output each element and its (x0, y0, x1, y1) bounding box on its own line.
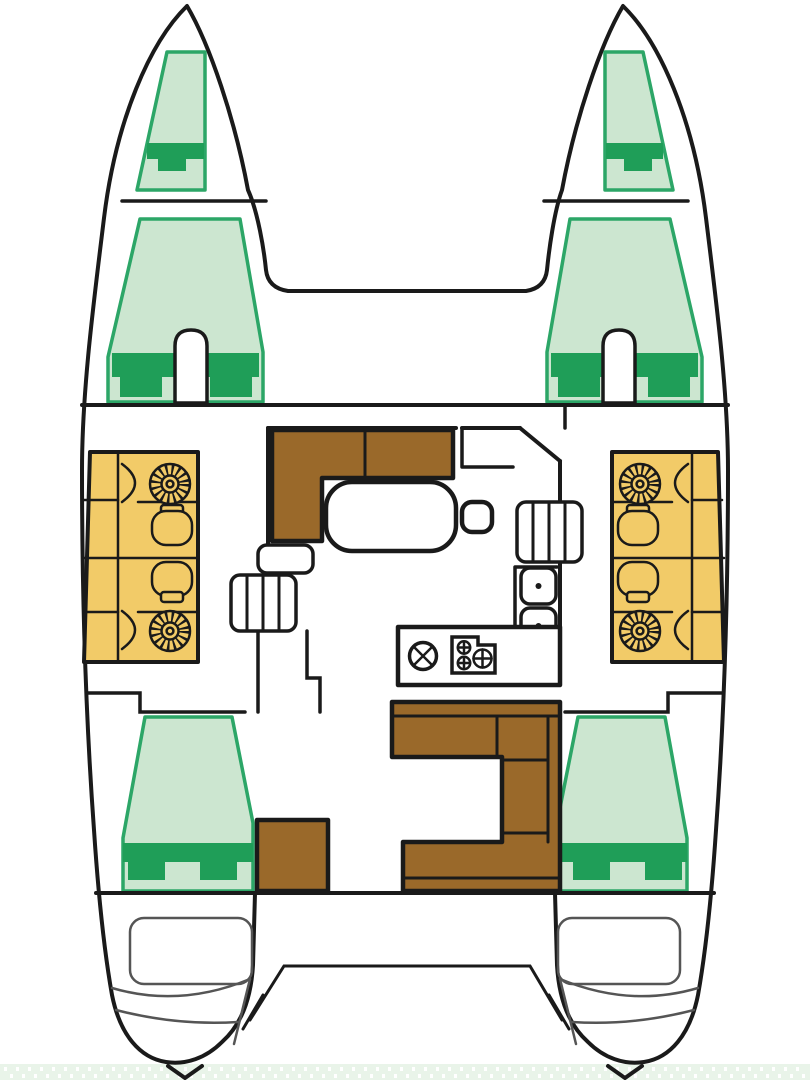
fan-icon (150, 464, 190, 504)
galley-counter (398, 627, 560, 685)
pillow-band-aft-starboard (557, 843, 687, 862)
pillow-tab-fwd-port-2 (210, 377, 252, 397)
pillow-band-fwd-port-1 (112, 353, 175, 377)
aft-platform-frame (243, 966, 569, 1029)
drain-dot (536, 583, 542, 589)
pillow-band-fwd-port-2 (207, 353, 259, 377)
saloon-table (326, 482, 456, 551)
pillow-tab-forepeak-port (158, 157, 186, 171)
pillow-tab-aft-port-1 (128, 862, 165, 880)
water-strip-band (0, 1064, 810, 1080)
bathroom-starboard (612, 452, 724, 662)
bottom-water-strip (0, 1064, 810, 1080)
companionway-steps-port (231, 575, 296, 631)
pillow-band-fwd-stbd-1 (551, 353, 603, 377)
floor-plan-canvas (0, 0, 810, 1080)
pillow-tab-fwd-stbd-2 (648, 377, 690, 397)
pillow-forepeak-starboard (606, 143, 663, 159)
pillow-tab-fwd-stbd-1 (558, 377, 600, 397)
pillow-forepeak-port (147, 143, 204, 159)
pillow-tab-forepeak-starboard (624, 157, 652, 171)
cockpit-bench (257, 820, 328, 891)
companionway-landing-port (258, 545, 313, 573)
pillow-tab-aft-port-2 (200, 862, 237, 880)
fan-icon (620, 611, 660, 651)
berth-walkway-arch-starboard (603, 330, 635, 403)
bathroom-port (84, 452, 198, 662)
catamaran-floor-plan (0, 0, 810, 1080)
fan-icon (150, 611, 190, 651)
pillow-band-fwd-stbd-2 (635, 353, 698, 377)
companionway-steps-starboard (517, 502, 582, 562)
pillow-tab-fwd-port-1 (120, 377, 162, 397)
berth-walkway-arch-port (175, 330, 207, 403)
stool (462, 502, 492, 532)
aft-platform-line (250, 966, 562, 1020)
pillow-band-aft-port (123, 843, 253, 862)
fan-icon (620, 464, 660, 504)
pillow-tab-aft-stbd-2 (645, 862, 682, 880)
pillow-tab-aft-stbd-1 (573, 862, 610, 880)
